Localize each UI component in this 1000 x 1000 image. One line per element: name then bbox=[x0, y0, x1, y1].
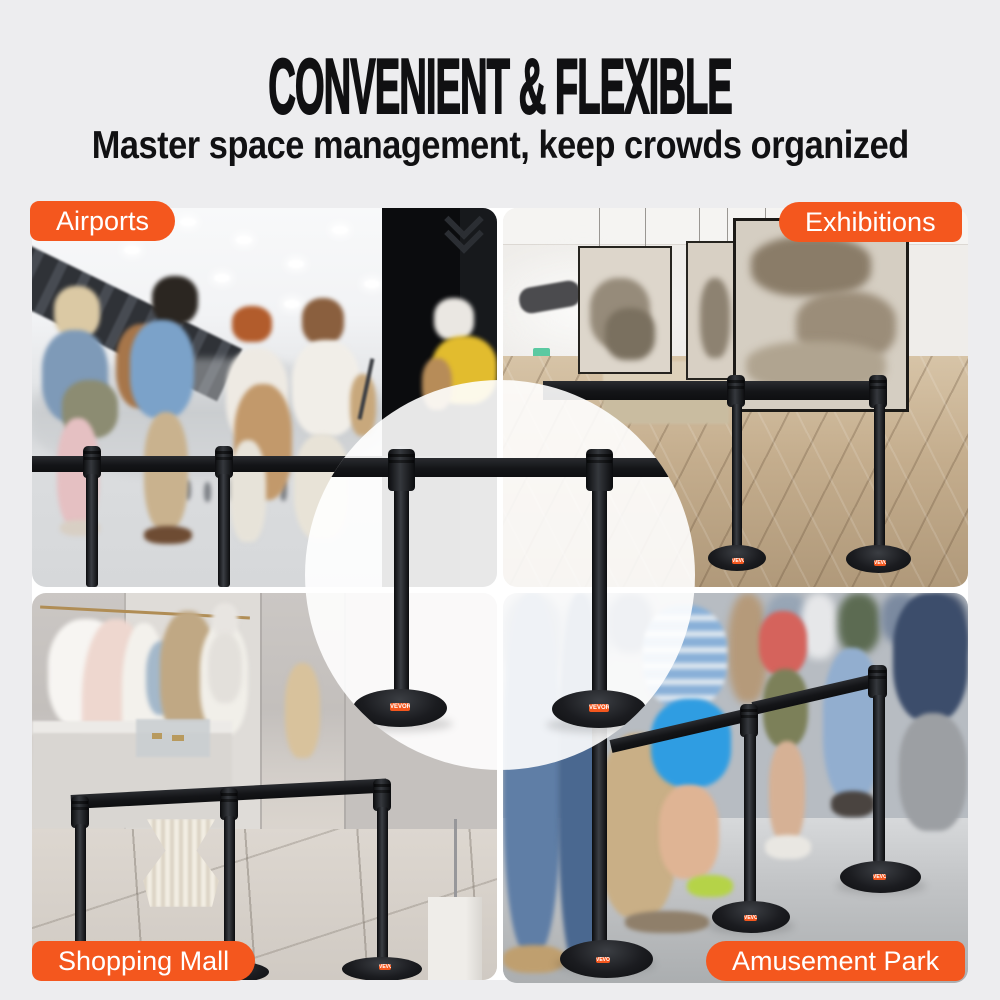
stanchion-post bbox=[218, 474, 230, 587]
crowd-person bbox=[838, 593, 880, 653]
stanchion-post-head bbox=[586, 449, 613, 491]
ceiling-light bbox=[364, 280, 380, 288]
distant-person bbox=[204, 482, 211, 502]
person-sneakers bbox=[765, 835, 811, 859]
vevor-logo-chip: VEVOR bbox=[379, 964, 391, 970]
stanchion-post-left bbox=[394, 488, 409, 694]
person-tshirt bbox=[292, 340, 360, 436]
stanchion-post bbox=[377, 807, 388, 972]
page-subtitle-text: Master space management, keep crowds org… bbox=[91, 124, 908, 169]
ceiling-light bbox=[236, 236, 252, 244]
product-infographic: CONVENIENT & FLEXIBLE Master space manag… bbox=[0, 0, 1000, 1000]
head-wrap bbox=[232, 306, 272, 342]
display-gold-item bbox=[152, 733, 162, 739]
picture-frame bbox=[578, 246, 672, 374]
page-subtitle: Master space management, keep crowds org… bbox=[0, 124, 1000, 169]
mirror-reflection-dress bbox=[285, 663, 320, 758]
vevor-logo-chip: VEVOR bbox=[390, 703, 410, 711]
artwork-smudge bbox=[751, 236, 871, 296]
hanging-wire bbox=[645, 208, 646, 248]
person-legs bbox=[769, 741, 805, 843]
label-exhibitions: Exhibitions bbox=[779, 202, 962, 242]
ceiling-light bbox=[284, 300, 300, 308]
kid-blue-shorts bbox=[651, 699, 731, 787]
vevor-logo-chip: VEVOR bbox=[744, 915, 757, 921]
stanchion-post bbox=[592, 723, 607, 953]
label-shopping-mall: Shopping Mall bbox=[32, 941, 255, 981]
hanging-wire bbox=[727, 208, 728, 243]
stanchion-post-head bbox=[388, 449, 415, 491]
person-gray-pants bbox=[899, 713, 967, 831]
stanchion-post bbox=[86, 474, 98, 587]
page-title-text: CONVENIENT & FLEXIBLE bbox=[268, 47, 732, 125]
stanchion-post-head bbox=[727, 375, 745, 407]
person-hair bbox=[152, 276, 198, 324]
retractable-belt bbox=[305, 458, 695, 477]
person-shoes bbox=[503, 945, 565, 973]
vevor-logo-chip: VEVOR bbox=[732, 558, 744, 564]
person-sandals bbox=[831, 791, 875, 817]
ceiling-light bbox=[180, 218, 196, 226]
mannequin-torso bbox=[208, 633, 242, 703]
artwork-smudge bbox=[700, 278, 730, 358]
vevor-logo-chip: VEVOR bbox=[874, 560, 886, 566]
stanchion-post-head bbox=[740, 704, 758, 737]
ceiling-light bbox=[214, 274, 230, 282]
stanchion-post bbox=[873, 695, 885, 863]
ceiling-light bbox=[288, 260, 304, 268]
label-airports-text: Airports bbox=[56, 201, 149, 241]
person-shirt bbox=[130, 320, 194, 418]
product-stanchions: VEVOR VEVOR bbox=[305, 380, 695, 770]
white-pedestal bbox=[428, 897, 482, 980]
stanchion-base bbox=[846, 545, 911, 573]
vevor-logo-chip: VEVOR bbox=[596, 957, 610, 963]
stanchion-post bbox=[744, 734, 756, 906]
artwork-smudge bbox=[605, 308, 655, 360]
display-gold-item bbox=[172, 735, 184, 741]
ceiling-light bbox=[124, 246, 140, 254]
hanging-wire bbox=[599, 208, 600, 248]
person-red-top bbox=[759, 611, 807, 675]
stanchion-post-right bbox=[592, 488, 607, 694]
vevor-logo-chip: VEVOR bbox=[873, 874, 886, 880]
kid-legs bbox=[659, 785, 719, 879]
person-hair bbox=[434, 298, 474, 340]
stanchion-post bbox=[874, 404, 885, 555]
stanchion-post-head bbox=[868, 665, 887, 698]
stanchion-post bbox=[732, 404, 742, 554]
label-amusement-park: Amusement Park bbox=[706, 941, 965, 981]
person-shoes bbox=[625, 911, 709, 933]
page-title: CONVENIENT & FLEXIBLE bbox=[0, 47, 1000, 125]
vevor-logo-chip: VEVOR bbox=[589, 704, 609, 712]
label-exhibitions-text: Exhibitions bbox=[805, 202, 936, 242]
mannequin-head bbox=[212, 603, 238, 637]
kid-sneakers bbox=[687, 875, 733, 897]
ceiling-light bbox=[332, 226, 348, 234]
label-airports: Airports bbox=[30, 201, 175, 241]
person-navy-jacket bbox=[893, 593, 968, 721]
hanging-wire bbox=[699, 208, 700, 243]
label-amusement-park-text: Amusement Park bbox=[732, 941, 939, 981]
person-hair bbox=[302, 298, 344, 344]
label-shopping-mall-text: Shopping Mall bbox=[58, 941, 229, 981]
display-pole bbox=[454, 819, 457, 901]
retractable-belt bbox=[543, 381, 877, 400]
person-shoes bbox=[144, 526, 192, 544]
